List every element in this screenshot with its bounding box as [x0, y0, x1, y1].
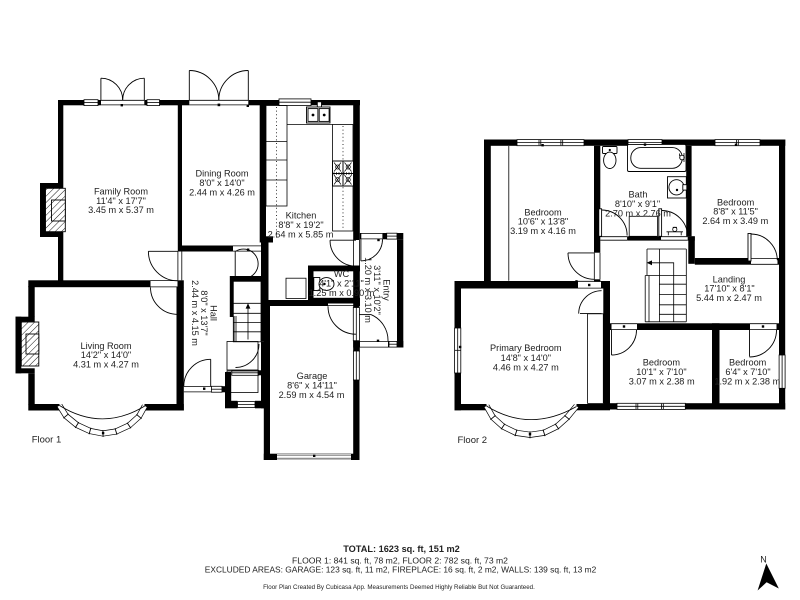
svg-text:3.07 m x 2.38 m: 3.07 m x 2.38 m — [629, 376, 695, 386]
svg-text:3.45 m x 5.37 m: 3.45 m x 5.37 m — [88, 205, 154, 215]
svg-text:TOTAL: 1623 sq. ft, 151 m2: TOTAL: 1623 sq. ft, 151 m2 — [343, 544, 460, 554]
svg-text:N: N — [760, 555, 767, 565]
svg-text:Floor 1: Floor 1 — [32, 434, 62, 445]
svg-text:4.46 m x 4.27 m: 4.46 m x 4.27 m — [493, 362, 559, 372]
svg-text:2.64 m x 5.85 m: 2.64 m x 5.85 m — [268, 230, 334, 240]
svg-text:2.70 m x 2.76 m: 2.70 m x 2.76 m — [605, 208, 671, 218]
svg-text:3.19 m x 4.16 m: 3.19 m x 4.16 m — [510, 226, 576, 236]
svg-text:Floor Plan Created By Cubicasa: Floor Plan Created By Cubicasa App. Meas… — [263, 584, 535, 591]
svg-text:Primary Bedroom: Primary Bedroom — [490, 343, 562, 353]
svg-text:5.44 m x 2.47 m: 5.44 m x 2.47 m — [696, 293, 762, 303]
svg-text:Floor 2: Floor 2 — [458, 435, 488, 446]
svg-text:EXCLUDED AREAS: GARAGE: 123 sq: EXCLUDED AREAS: GARAGE: 123 sq. ft, 11 m… — [205, 565, 597, 575]
svg-text:2.44 m x 4.15 m: 2.44 m x 4.15 m — [190, 280, 200, 346]
svg-text:2.44 m x 4.26 m: 2.44 m x 4.26 m — [189, 187, 255, 197]
svg-text:1.92 m x 2.38 m: 1.92 m x 2.38 m — [714, 376, 780, 386]
svg-text:2.64 m x 3.49 m: 2.64 m x 3.49 m — [702, 216, 768, 226]
svg-text:1.20 m x 3.10 m: 1.20 m x 3.10 m — [363, 257, 373, 323]
svg-text:4.31 m x 4.27 m: 4.31 m x 4.27 m — [73, 360, 139, 370]
svg-text:2.59 m x 4.54 m: 2.59 m x 4.54 m — [279, 390, 345, 400]
